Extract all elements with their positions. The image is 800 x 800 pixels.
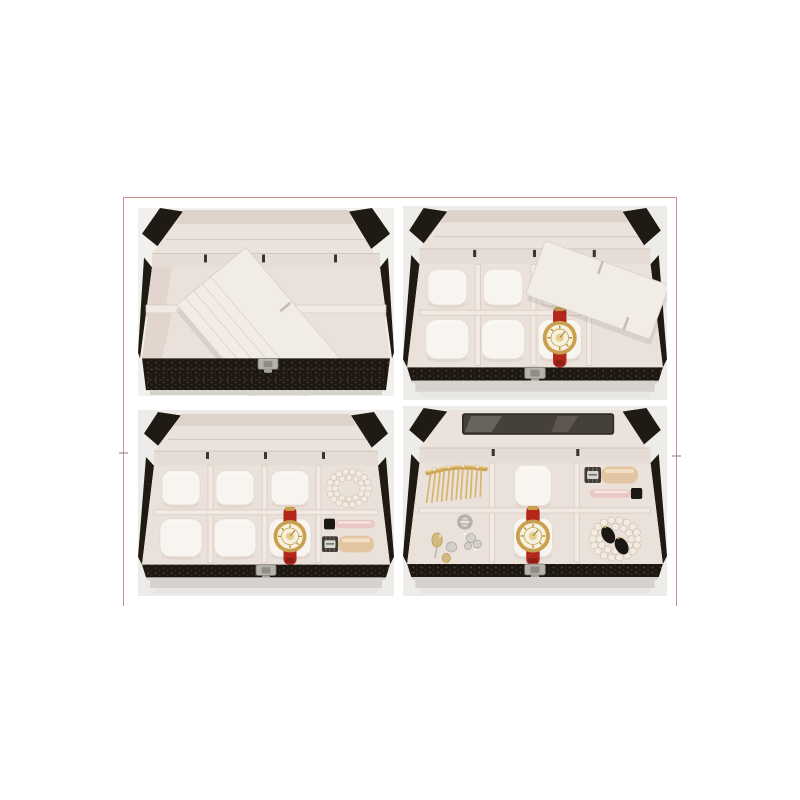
watch-pillow [214,519,256,560]
earring [446,542,456,552]
watch-pillow [514,465,551,509]
watch-pillow [481,319,524,362]
lip-gloss [590,488,643,499]
watch-pillow [271,471,309,508]
watch-pillow [162,471,200,508]
back-wall [420,448,651,463]
photo-box-pillows-card [403,206,667,400]
nail-polish [322,536,374,553]
photo-box-watch-cosmetics [138,410,394,596]
nail-polish [585,467,639,484]
product-image-collage [123,197,677,606]
border-tick-right [672,455,681,457]
watch-pillow [483,269,522,308]
watch-pillow [216,471,254,508]
photo-box-divider-cards [138,208,394,396]
watch-pillow [428,269,467,308]
back-wall [152,254,380,268]
watch-pillow [426,319,469,362]
page-background [0,0,800,800]
watch-pillow [160,519,202,560]
photo-box-full-jewelry [403,406,667,596]
border-tick-left [119,452,128,454]
lip-gloss [324,519,375,530]
earring [432,533,442,547]
